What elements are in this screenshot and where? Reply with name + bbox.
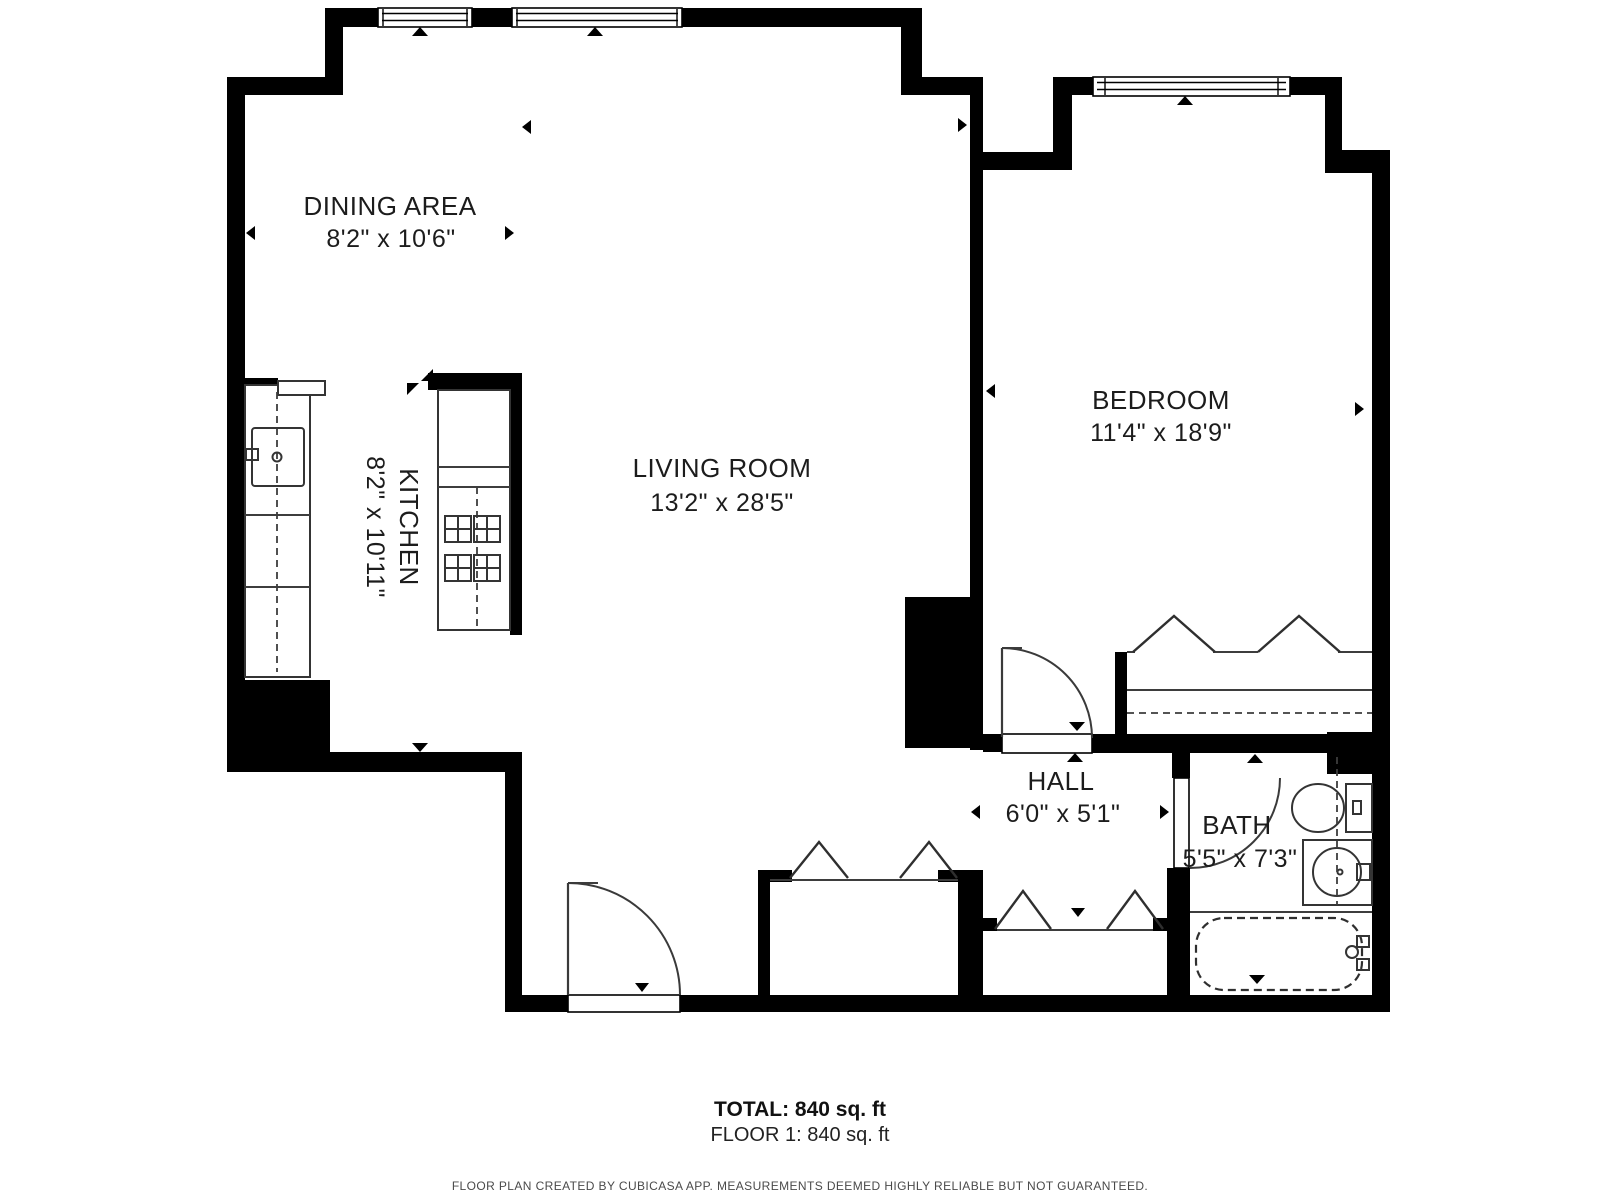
room-dims-hall: 6'0" x 5'1" bbox=[1006, 800, 1121, 828]
room-label-kitchen: KITCHEN bbox=[394, 468, 424, 586]
total-area-text: TOTAL: 840 sq. ft bbox=[0, 1098, 1600, 1122]
entry-door bbox=[568, 883, 680, 1012]
room-dims-kitchen: 8'2" x 10'11" bbox=[361, 456, 389, 598]
window-dining-left bbox=[378, 8, 472, 27]
bedroom-door bbox=[1002, 648, 1092, 753]
floor-plan-drawing: DINING AREA 8'2" x 10'6" KITCHEN 8'2" x … bbox=[0, 0, 1600, 1200]
room-dims-bedroom: 11'4" x 18'9" bbox=[1090, 419, 1232, 447]
bathtub bbox=[1196, 918, 1369, 990]
window-bedroom bbox=[1093, 77, 1290, 96]
toilet bbox=[1292, 784, 1372, 832]
kitchen-counter-right bbox=[438, 390, 510, 630]
room-label-dining: DINING AREA bbox=[303, 191, 476, 221]
room-dims-bath: 5'5" x 7'3" bbox=[1183, 845, 1298, 873]
room-dims-living: 13'2" x 28'5" bbox=[650, 489, 794, 517]
room-label-bath: BATH bbox=[1202, 810, 1271, 840]
room-label-hall: HALL bbox=[1027, 766, 1094, 796]
entry-closet bbox=[770, 842, 958, 880]
room-dims-dining: 8'2" x 10'6" bbox=[326, 225, 455, 253]
disclaimer-text: FLOOR PLAN CREATED BY CUBICASA APP. MEAS… bbox=[0, 1179, 1600, 1193]
kitchen-counter-left bbox=[245, 381, 325, 677]
bedroom-closet bbox=[1127, 616, 1372, 713]
room-label-living: LIVING ROOM bbox=[633, 453, 812, 483]
floor-plan-page: DINING AREA 8'2" x 10'6" KITCHEN 8'2" x … bbox=[0, 0, 1600, 1200]
window-dining-right bbox=[512, 8, 682, 27]
room-label-bedroom: BEDROOM bbox=[1092, 385, 1230, 415]
floor-area-text: FLOOR 1: 840 sq. ft bbox=[0, 1124, 1600, 1147]
